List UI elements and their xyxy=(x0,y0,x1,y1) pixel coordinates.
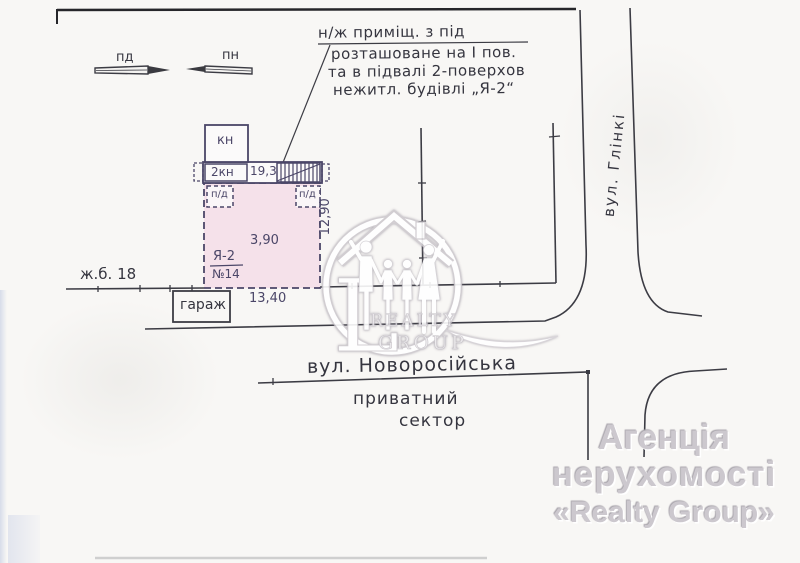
neighbor-house-label: ж.б. 18 xyxy=(80,267,136,283)
sector-label-line2: сектор xyxy=(399,413,466,431)
depth-dim-label: 12,90 xyxy=(319,192,333,242)
scanned-site-plan: L REALTY GROUP н/ж прим xyxy=(0,0,800,563)
inner-dim-label: 3,90 xyxy=(250,234,279,248)
compass-south-label: пд xyxy=(116,51,134,65)
strip-dim-label: 19,3 xyxy=(250,165,277,178)
number-label: №14 xyxy=(212,268,240,281)
garage-label: гараж xyxy=(180,298,226,313)
kn2-label: 2кн xyxy=(211,166,234,179)
agency-line-3: «Realty Group» xyxy=(533,494,795,532)
compass-north-label: пн xyxy=(222,49,239,63)
annotation-line-2: розташоване на І пов. xyxy=(331,45,517,63)
horizontal-street-label: вул. Новоросійська xyxy=(307,354,517,378)
litera-label: Я-2 xyxy=(213,250,235,264)
watermark-word2: GROUP xyxy=(378,332,467,354)
agency-watermark-text: Агенція нерухомості «Realty Group» xyxy=(533,419,795,532)
kn-label: кн xyxy=(217,134,233,148)
basement-left-label: п/д xyxy=(211,190,228,201)
watermark-word1: REALTY xyxy=(370,311,458,331)
basement-right-label: п/д xyxy=(299,190,316,201)
annotation-line-4: нежитл. будівлі „Я-2“ xyxy=(333,81,515,99)
chimney-icon xyxy=(416,222,425,239)
width-dim-label: 13,40 xyxy=(249,292,286,306)
annotation-line-1: н/ж приміщ. з під xyxy=(318,24,465,41)
agency-line-2: нерухомості xyxy=(533,456,795,494)
agency-line-1: Агенція xyxy=(533,419,795,456)
annotation-line-3: та в підвалі 2-поверхов xyxy=(328,63,525,81)
sector-label-line1: приватний xyxy=(353,391,459,409)
